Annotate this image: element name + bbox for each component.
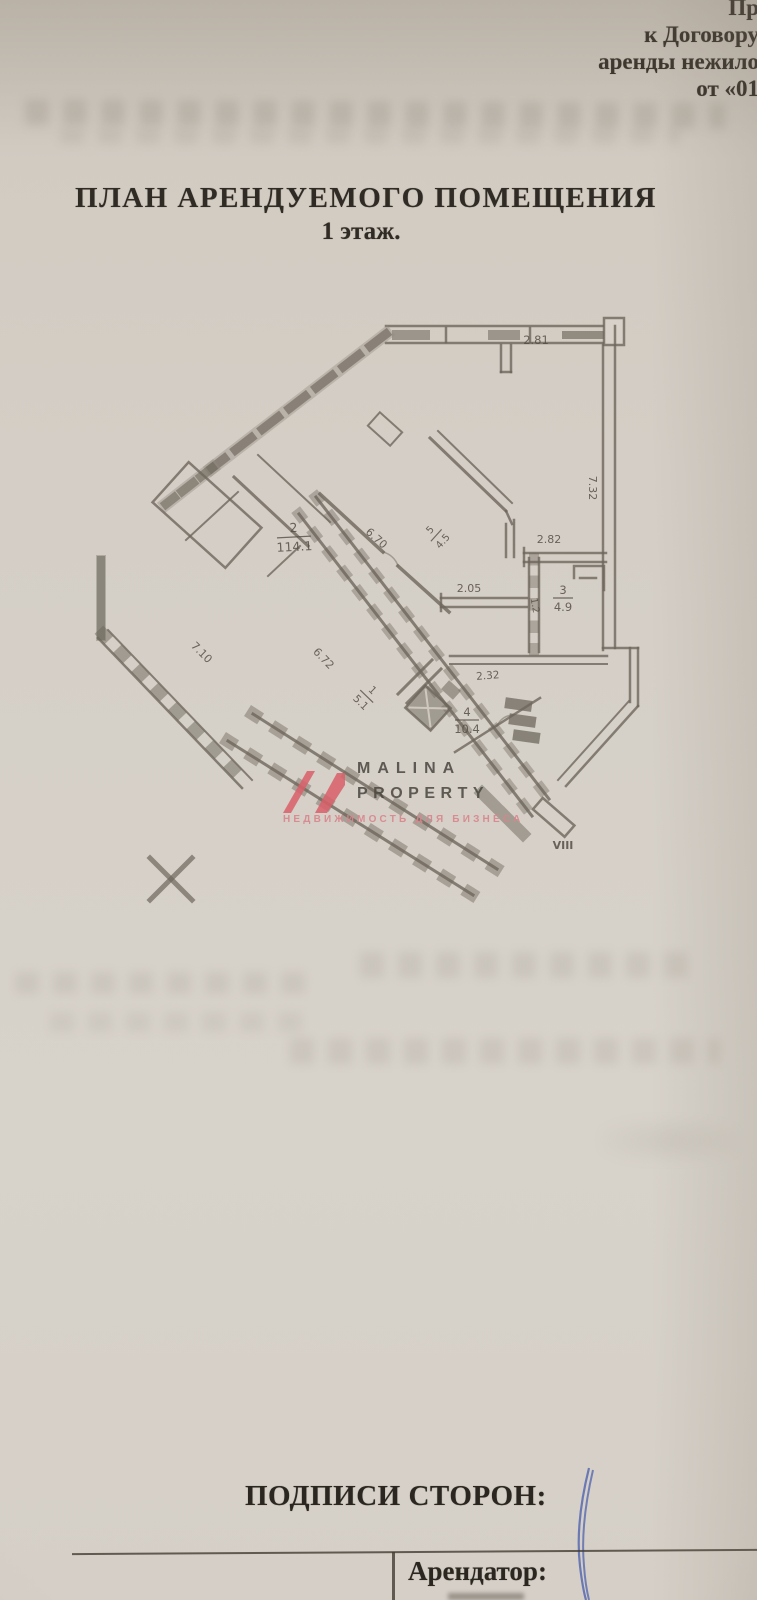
room-5-label: 5 4.5	[421, 521, 453, 552]
dim-7-10: 7.10	[188, 639, 215, 666]
room-1-label: 1 5.1	[350, 680, 383, 713]
header-line-3: аренды нежило	[598, 48, 757, 75]
svg-text:1: 1	[366, 684, 379, 697]
contract-header: Пр к Договору аренды нежило от «01	[598, 0, 757, 102]
dim-6-72: 6.72	[310, 645, 336, 672]
dim-2-32: 2.32	[476, 669, 500, 683]
svg-text:4: 4	[463, 705, 470, 719]
cutoff-row-text	[448, 1593, 524, 1600]
svg-text:4.9: 4.9	[554, 600, 572, 614]
header-line-4: от «01	[598, 75, 757, 102]
svg-text:10.4: 10.4	[454, 722, 480, 736]
bleed-through-text	[25, 99, 725, 129]
watermark-brand-top: MALINA	[357, 760, 461, 778]
table-top-border	[72, 1549, 757, 1555]
bleed-through-text	[360, 952, 690, 978]
svg-text:114.1: 114.1	[276, 538, 313, 555]
label-viii: VIII	[553, 839, 574, 852]
floor-plan: 2.81 7.32 2.82 2.05 2.32 6.70 6.72 7.10 …	[0, 295, 757, 920]
bleed-through-text	[290, 1038, 720, 1064]
svg-text:5.1: 5.1	[350, 693, 370, 713]
dim-2-82: 2.82	[537, 533, 562, 546]
dim-2-05: 2.05	[457, 582, 482, 595]
watermark-tagline: НЕДВИЖИМОСТЬ ДЛЯ БИЗНЕСА	[283, 814, 523, 825]
header-line-1: Пр	[598, 0, 757, 21]
room-3-label: 3 4.9	[553, 583, 573, 614]
bleed-through-text	[50, 1012, 310, 1032]
svg-text:2: 2	[289, 520, 298, 535]
bleed-through-text	[60, 128, 680, 144]
tenant-label: Арендатор:	[408, 1556, 547, 1587]
svg-text:3: 3	[559, 583, 566, 597]
table-cell-divider	[392, 1552, 395, 1600]
malina-logo-icon	[281, 763, 349, 815]
dim-2-81: 2.81	[523, 333, 549, 347]
signatures-heading: ПОДПИСИ СТОРОН:	[245, 1480, 547, 1513]
plan-subtitle: 1 этаж.	[0, 218, 722, 246]
plan-title: ПЛАН АРЕНДУЕМОГО ПОМЕЩЕНИЯ	[0, 182, 732, 215]
pen-signature	[558, 1453, 610, 1600]
dim-7-32: 7.32	[586, 476, 599, 501]
svg-text:5: 5	[424, 524, 436, 536]
bleed-through-text	[15, 972, 315, 994]
header-line-2: к Договору	[598, 21, 757, 48]
bleed-through-text	[600, 1118, 740, 1163]
watermark-brand-bottom: PROPERTY	[357, 785, 489, 803]
